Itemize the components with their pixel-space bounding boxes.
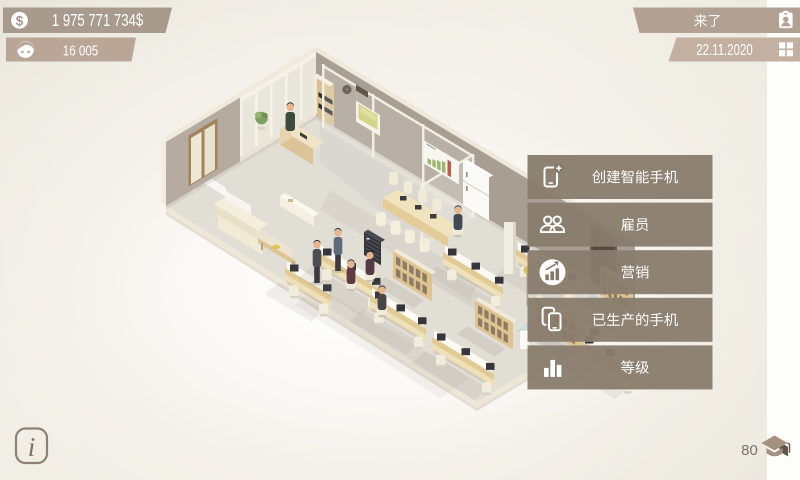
svg-text:80: 80	[741, 442, 758, 459]
svg-text:i: i	[28, 432, 36, 462]
svg-text:1 975 771 734$: 1 975 771 734$	[52, 11, 143, 30]
svg-text:16 005: 16 005	[63, 42, 98, 59]
svg-text:$: $	[16, 13, 24, 28]
svg-text:22.11.2020: 22.11.2020	[696, 42, 753, 59]
